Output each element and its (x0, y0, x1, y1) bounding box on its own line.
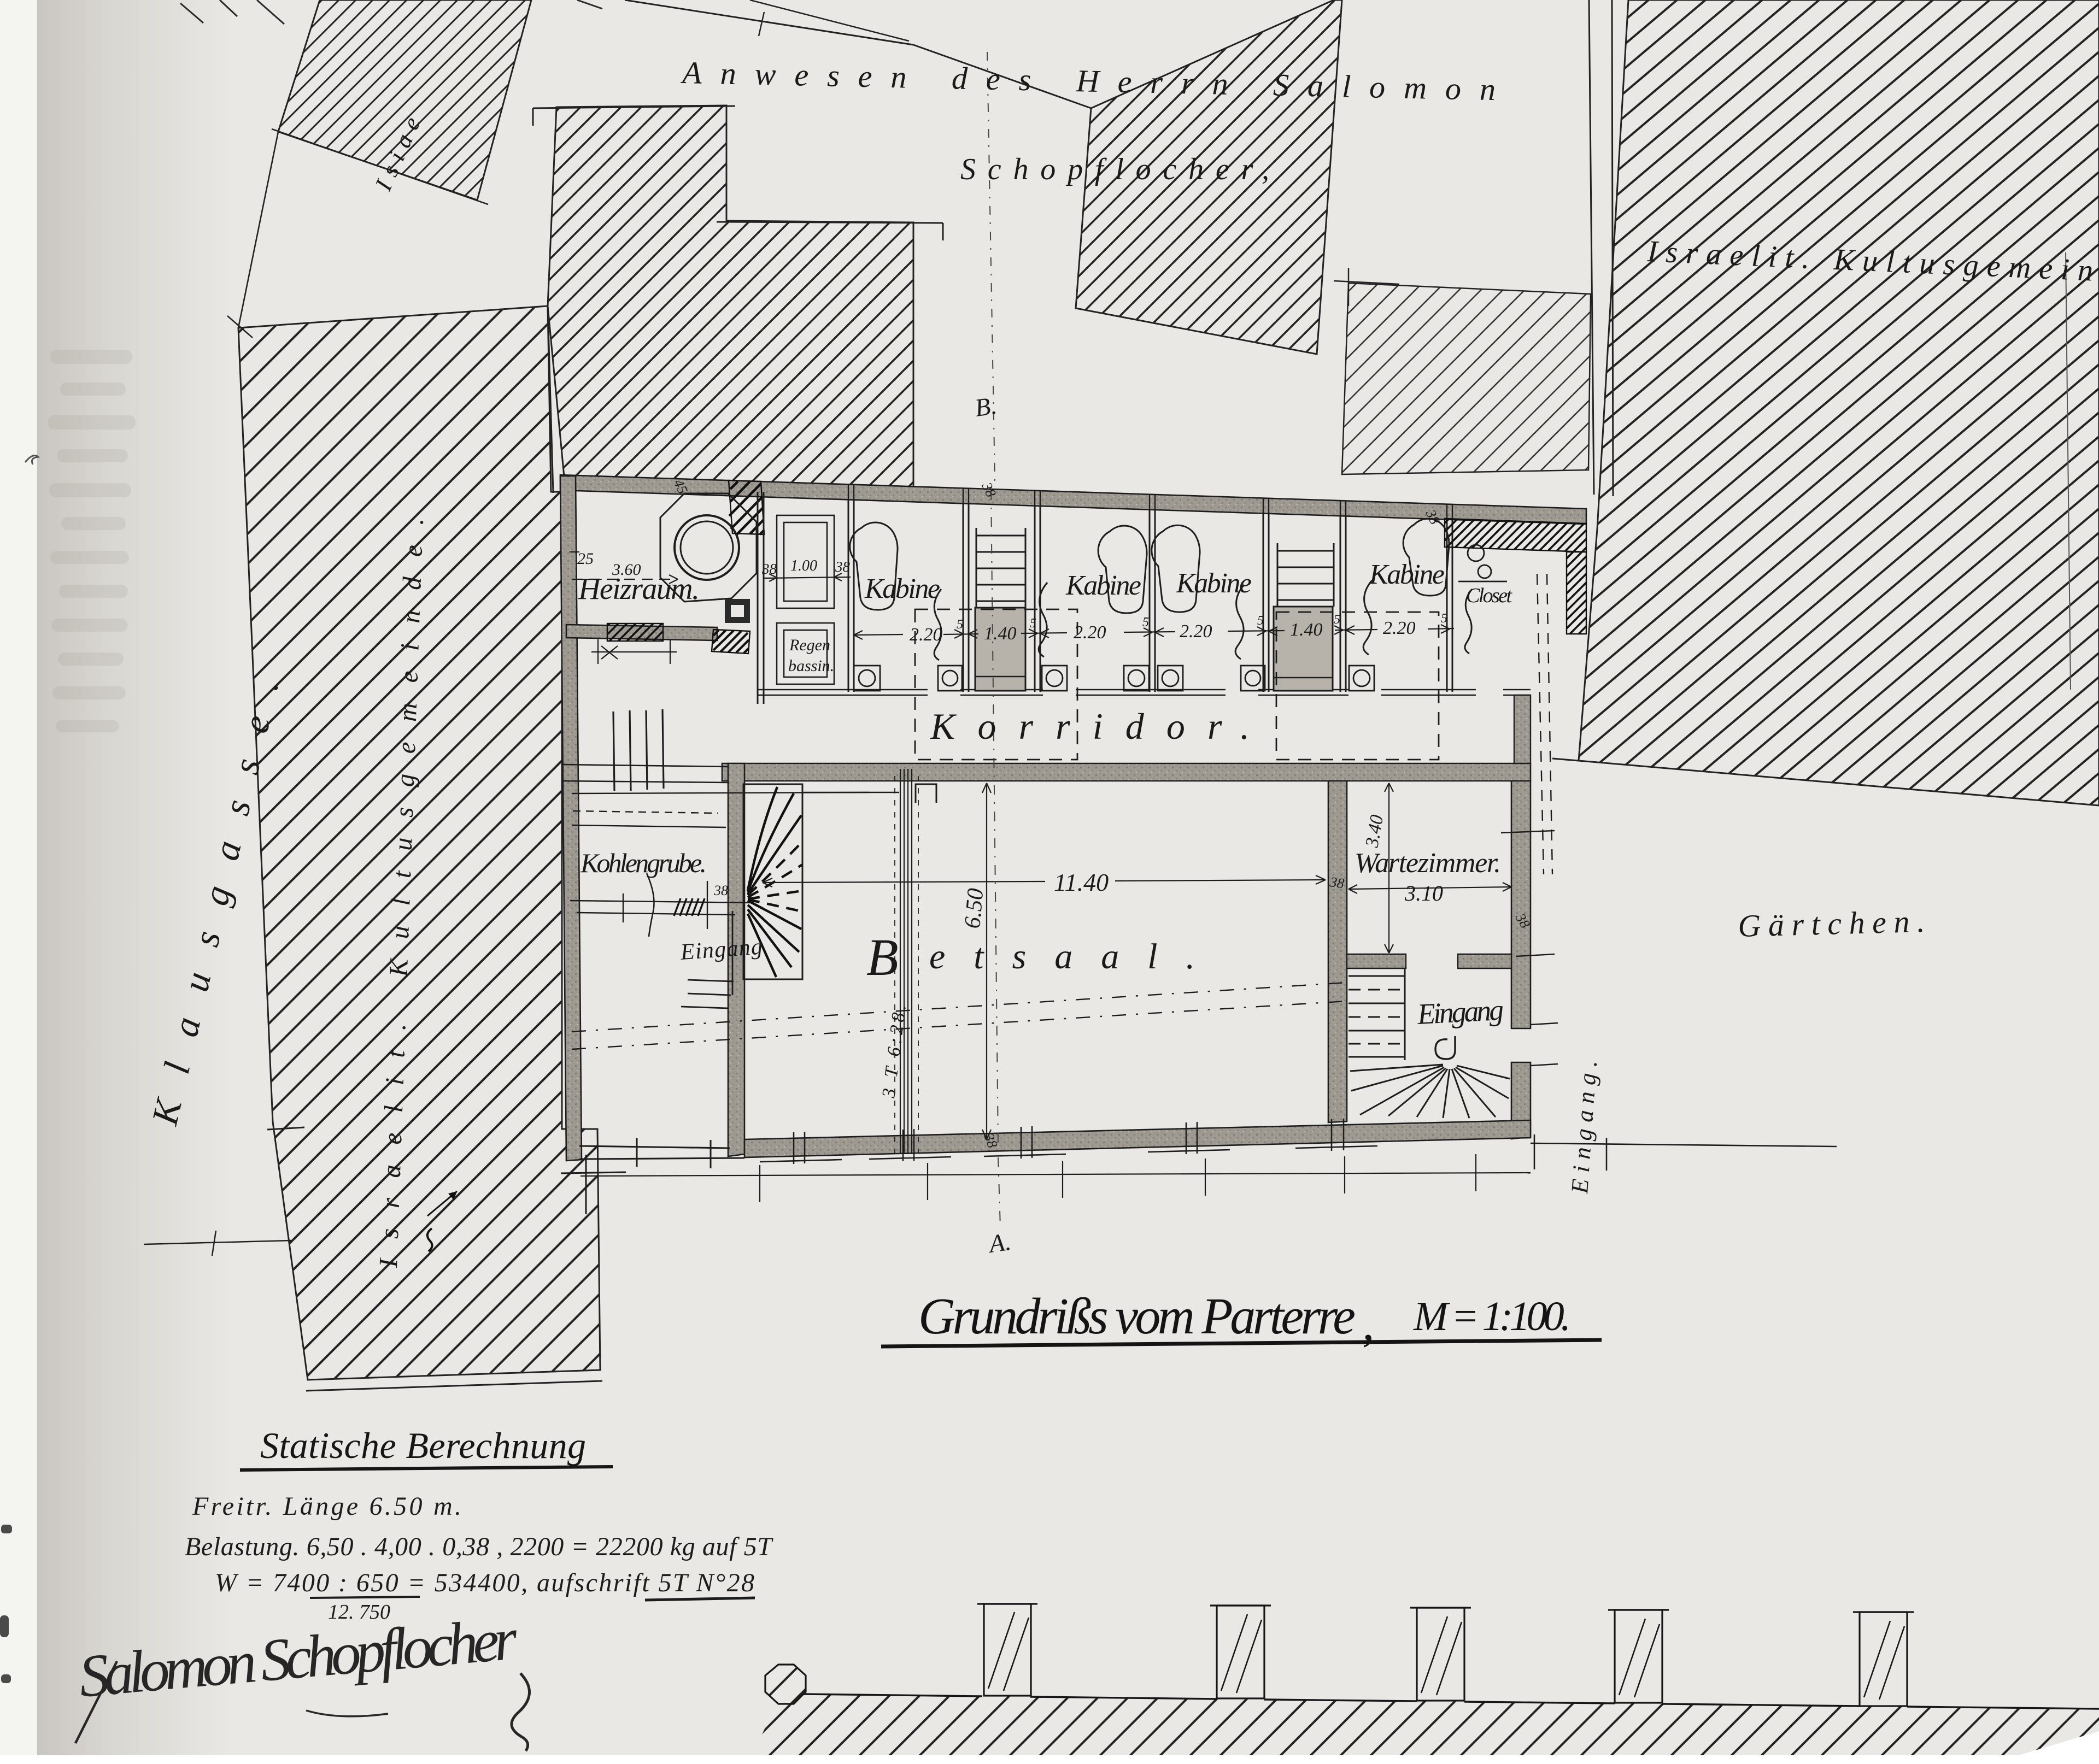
svg-text:Eingang: Eingang (1416, 993, 1504, 1031)
svg-text:Regen: Regen (789, 636, 830, 654)
svg-text:5: 5 (1441, 611, 1447, 626)
svg-text:5: 5 (957, 618, 963, 632)
svg-text:Korridor.: Korridor. (930, 705, 1270, 747)
svg-text:6.50: 6.50 (960, 887, 988, 930)
svg-text:bassin.: bassin. (788, 657, 834, 675)
svg-text:Wartezimmer.: Wartezimmer. (1355, 848, 1501, 879)
svg-text:38: 38 (761, 561, 777, 577)
svg-text:Kabine: Kabine (1065, 570, 1141, 601)
svg-text:38: 38 (713, 883, 728, 898)
svg-text:2.20: 2.20 (1383, 618, 1416, 638)
svg-text:Freitr. Länge 6.50 m.: Freitr. Länge 6.50 m. (192, 1492, 462, 1521)
svg-text:1.40: 1.40 (1290, 620, 1323, 640)
svg-text:5: 5 (1334, 613, 1340, 627)
svg-text:Grundrißs vom Parterre: Grundrißs vom Parterre (918, 1288, 1356, 1345)
svg-text:1.00: 1.00 (790, 557, 817, 574)
svg-text:38: 38 (835, 558, 851, 575)
svg-text:25: 25 (577, 550, 594, 568)
svg-text:Belastung. 6,50 . 4,00 . 0,38: Belastung. 6,50 . 4,00 . 0,38 , 2200 = 2… (185, 1532, 773, 1561)
svg-text:2.20: 2.20 (1074, 622, 1106, 643)
svg-text:Statische Berechnung: Statische Berechnung (260, 1425, 586, 1466)
svg-text:2.20: 2.20 (910, 625, 942, 645)
svg-text:2.20: 2.20 (1180, 621, 1212, 642)
svg-text:5: 5 (1030, 616, 1036, 631)
svg-text:B: B (866, 928, 915, 986)
svg-text:W = 7400 : 650 = 534400, au: W = 7400 : 650 = 534400, aufschrift 5T N… (215, 1568, 755, 1597)
svg-text:3.60: 3.60 (612, 561, 641, 579)
svg-text:Closet: Closet (1466, 584, 1512, 607)
svg-text:M = 1:100.: M = 1:100. (1413, 1293, 1571, 1339)
svg-text:Kabine: Kabine (1369, 559, 1445, 590)
svg-text:Kohlengrube.: Kohlengrube. (580, 848, 707, 878)
svg-text:B.: B. (973, 391, 998, 422)
svg-text:3.10: 3.10 (1404, 881, 1443, 905)
svg-text:11.40: 11.40 (1054, 868, 1109, 896)
svg-text:1.40: 1.40 (984, 624, 1017, 644)
svg-text:38: 38 (1328, 874, 1345, 891)
svg-text:Kabine: Kabine (864, 573, 940, 604)
svg-text:Kabine: Kabine (1176, 568, 1252, 599)
svg-text:5: 5 (1257, 614, 1264, 628)
svg-text:5: 5 (1142, 615, 1149, 630)
